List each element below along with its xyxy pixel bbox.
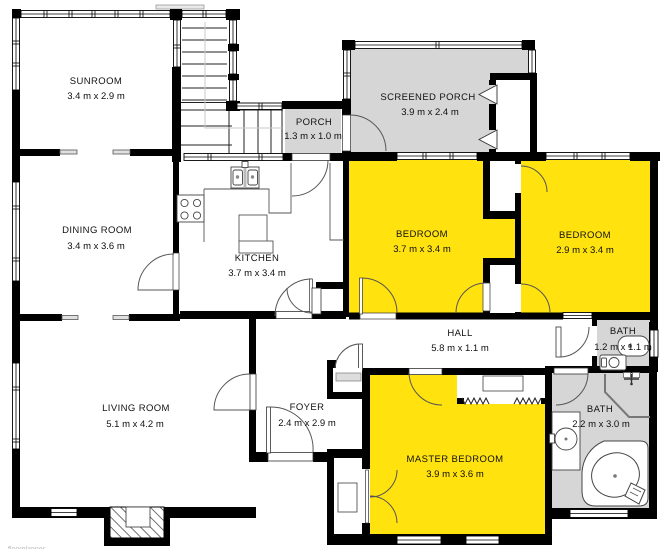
svg-text:5.1 m x 4.2 m: 5.1 m x 4.2 m [106,419,164,430]
svg-text:2.2 m x 3.0 m: 2.2 m x 3.0 m [572,419,630,430]
svg-text:3.9 m x 2.4 m: 3.9 m x 2.4 m [401,107,459,118]
svg-text:3.4 m x 2.9 m: 3.4 m x 2.9 m [67,91,125,102]
svg-text:DINING ROOM: DINING ROOM [62,225,132,236]
svg-text:2.4 m x 2.9 m: 2.4 m x 2.9 m [278,418,336,429]
svg-text:floorplanner: floorplanner [8,545,46,549]
svg-text:FOYER: FOYER [290,402,325,413]
svg-text:BEDROOM: BEDROOM [559,230,611,241]
svg-text:LIVING ROOM: LIVING ROOM [102,403,170,414]
svg-text:KITCHEN: KITCHEN [235,253,280,264]
svg-text:BATH: BATH [587,404,613,415]
svg-text:PORCH: PORCH [296,117,332,128]
svg-text:BATH: BATH [610,326,636,337]
svg-text:1.3 m x 1.0 m: 1.3 m x 1.0 m [284,131,342,142]
svg-text:HALL: HALL [447,328,472,339]
svg-text:SUNROOM: SUNROOM [70,76,122,87]
svg-text:3.9 m x 3.6 m: 3.9 m x 3.6 m [426,469,484,480]
svg-text:2.9 m x 3.4 m: 2.9 m x 3.4 m [556,245,614,256]
svg-text:1.2 m x 1.1 m: 1.2 m x 1.1 m [594,342,652,353]
svg-text:5.8 m x 1.1 m: 5.8 m x 1.1 m [431,343,489,354]
svg-text:SCREENED PORCH: SCREENED PORCH [380,92,475,103]
svg-text:3.4 m x 3.6 m: 3.4 m x 3.6 m [67,241,125,252]
svg-text:MASTER BEDROOM: MASTER BEDROOM [407,454,504,465]
svg-text:BEDROOM: BEDROOM [396,229,448,240]
svg-text:3.7 m x 3.4 m: 3.7 m x 3.4 m [393,244,451,255]
svg-text:3.7 m x 3.4 m: 3.7 m x 3.4 m [228,268,286,279]
